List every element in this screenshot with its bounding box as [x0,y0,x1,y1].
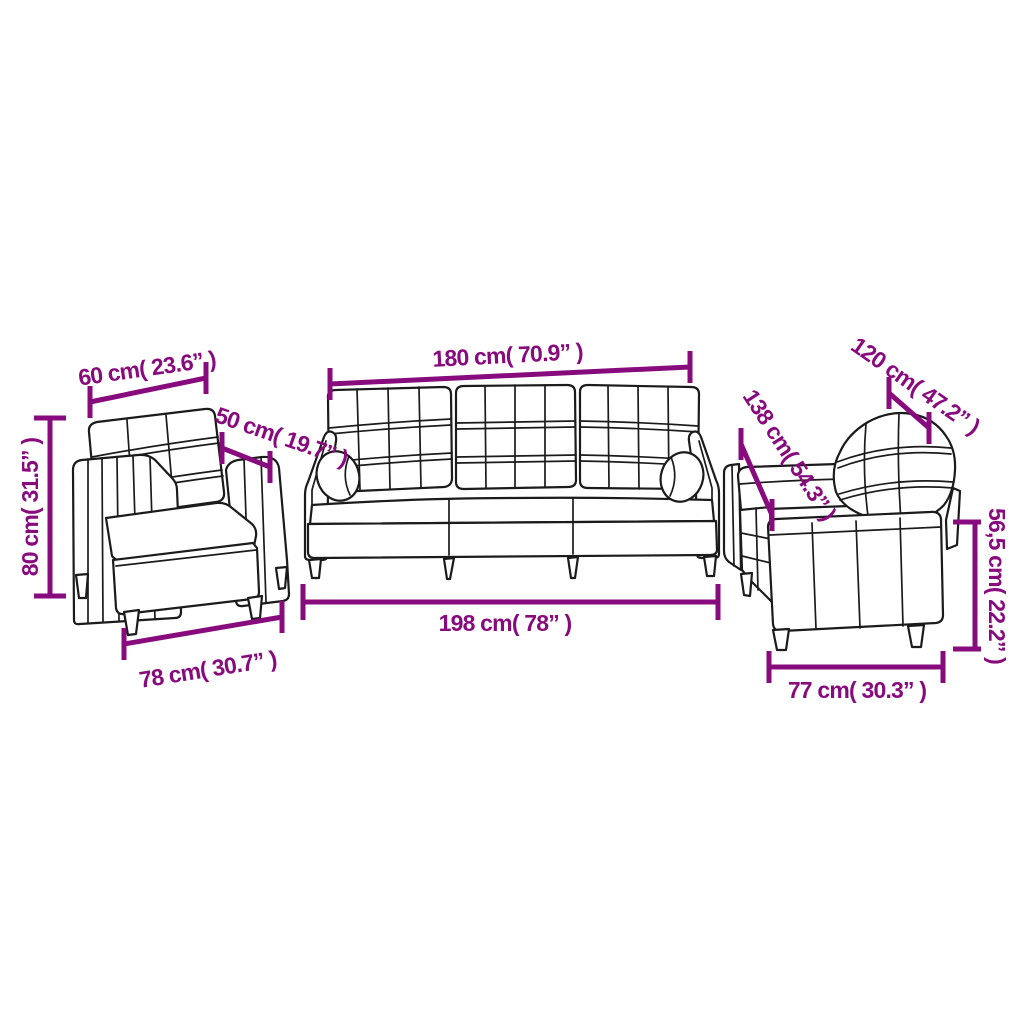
diagram-canvas: 60 cm( 23.6” ) 80 cm( 31.5” ) 50 cm( 19.… [0,0,1024,1024]
sofa3-leg [568,557,578,578]
dimension-diagram: 60 cm( 23.6” ) 80 cm( 31.5” ) 50 cm( 19.… [0,0,1024,1024]
dimension-label: 77 cm( 30.3” ) [788,677,927,703]
sofa3-back-cushion [456,385,576,489]
dimension-sofa2-seat-height: 56,5 cm( 22.2” ) [953,508,1010,664]
armchair-drawing [73,409,289,635]
dimension-label: 198 cm( 78” ) [439,610,572,636]
sofa3-base [308,521,717,558]
armchair-leg [76,574,88,598]
sofa2-leg [741,573,752,596]
two-seater-sofa-drawing [724,413,960,650]
sofa3-leg [704,556,716,576]
dimension-label: 60 cm( 23.6” ) [77,346,218,391]
armchair-leg [248,596,262,619]
sofa3-leg [309,559,321,578]
sofa2-leg [773,629,789,650]
sofa2-leg [908,625,924,647]
dimension-label: 80 cm( 31.5” ) [17,438,43,577]
three-seater-sofa-drawing [305,385,719,579]
dimension-sofa3-base-width: 198 cm( 78” ) [303,584,718,636]
dimension-armchair-height: 80 cm( 31.5” ) [17,418,66,596]
sofa3-seat [310,498,714,524]
sofa3-leg [444,558,454,579]
dimension-armchair-back-width: 60 cm( 23.6” ) [77,346,218,418]
sofa2-back-cushion [834,413,955,521]
dimension-label: 180 cm( 70.9” ) [432,338,584,372]
armchair-leg [276,567,287,589]
dimension-sofa2-base-width: 77 cm( 30.3” ) [769,651,943,703]
dimension-label: 78 cm( 30.7” ) [137,645,278,692]
dimension-label: 56,5 cm( 22.2” ) [984,508,1010,664]
